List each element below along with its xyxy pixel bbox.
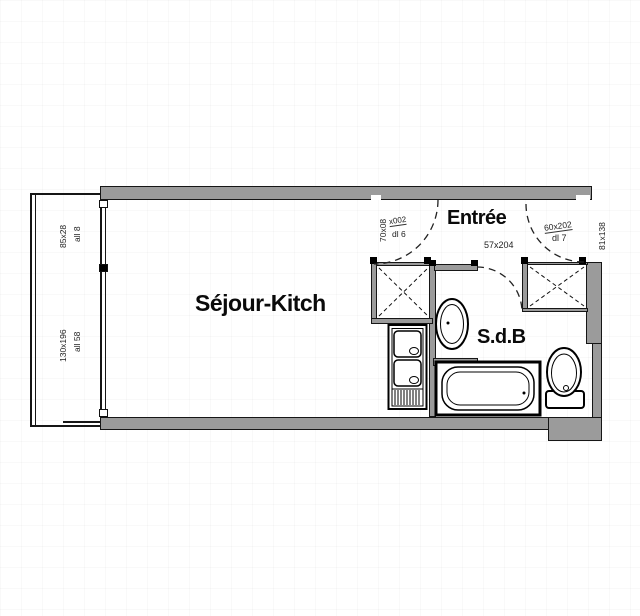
room-label-sdb: S.d.B <box>477 326 526 349</box>
dim-closet-left: 70x08 <box>378 219 388 242</box>
dim-closet-left-sill: dl 6 <box>392 229 406 239</box>
floor-plan: Séjour-Kitch Entrée S.d.B 57x204 85x28 a… <box>0 0 640 616</box>
door-swing-bathroom <box>477 267 522 312</box>
toilet <box>546 348 584 408</box>
room-label-entree: Entrée <box>447 207 506 230</box>
closet-left-cross <box>379 268 428 316</box>
closet-right-cross <box>530 267 584 306</box>
kitchen-sink <box>389 325 427 409</box>
bathtub <box>436 362 540 415</box>
dim-right-wall: 81x138 <box>597 222 607 250</box>
washbasin <box>436 299 468 349</box>
dim-window-bottom: 130x196 <box>58 329 68 362</box>
dim-window-top: 85x28 <box>58 225 68 248</box>
room-label-sejour: Séjour-Kitch <box>195 290 326 317</box>
dim-window-top-sill: all 8 <box>72 226 82 242</box>
dim-entree-door: 57x204 <box>484 240 514 250</box>
dim-closet-right-sill: dl 7 <box>552 233 567 243</box>
dim-window-bottom-sill: all 58 <box>72 332 82 352</box>
